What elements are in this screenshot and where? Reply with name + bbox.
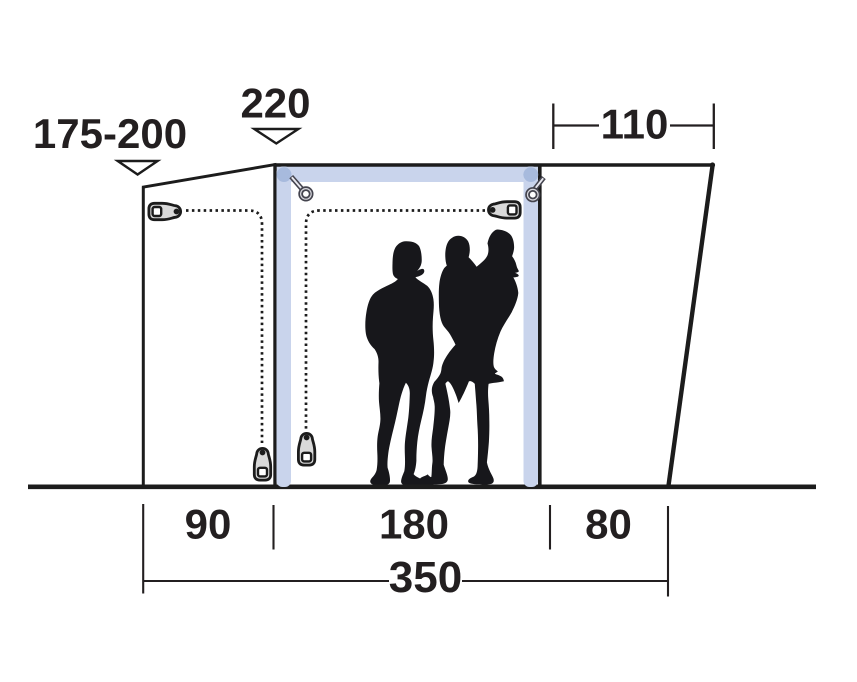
svg-text:220: 220 xyxy=(240,80,310,127)
svg-text:175-200: 175-200 xyxy=(33,110,187,157)
svg-text:110: 110 xyxy=(601,101,669,148)
svg-text:180: 180 xyxy=(379,501,449,548)
svg-text:90: 90 xyxy=(185,501,232,548)
svg-text:80: 80 xyxy=(585,501,632,548)
svg-text:350: 350 xyxy=(389,553,462,602)
